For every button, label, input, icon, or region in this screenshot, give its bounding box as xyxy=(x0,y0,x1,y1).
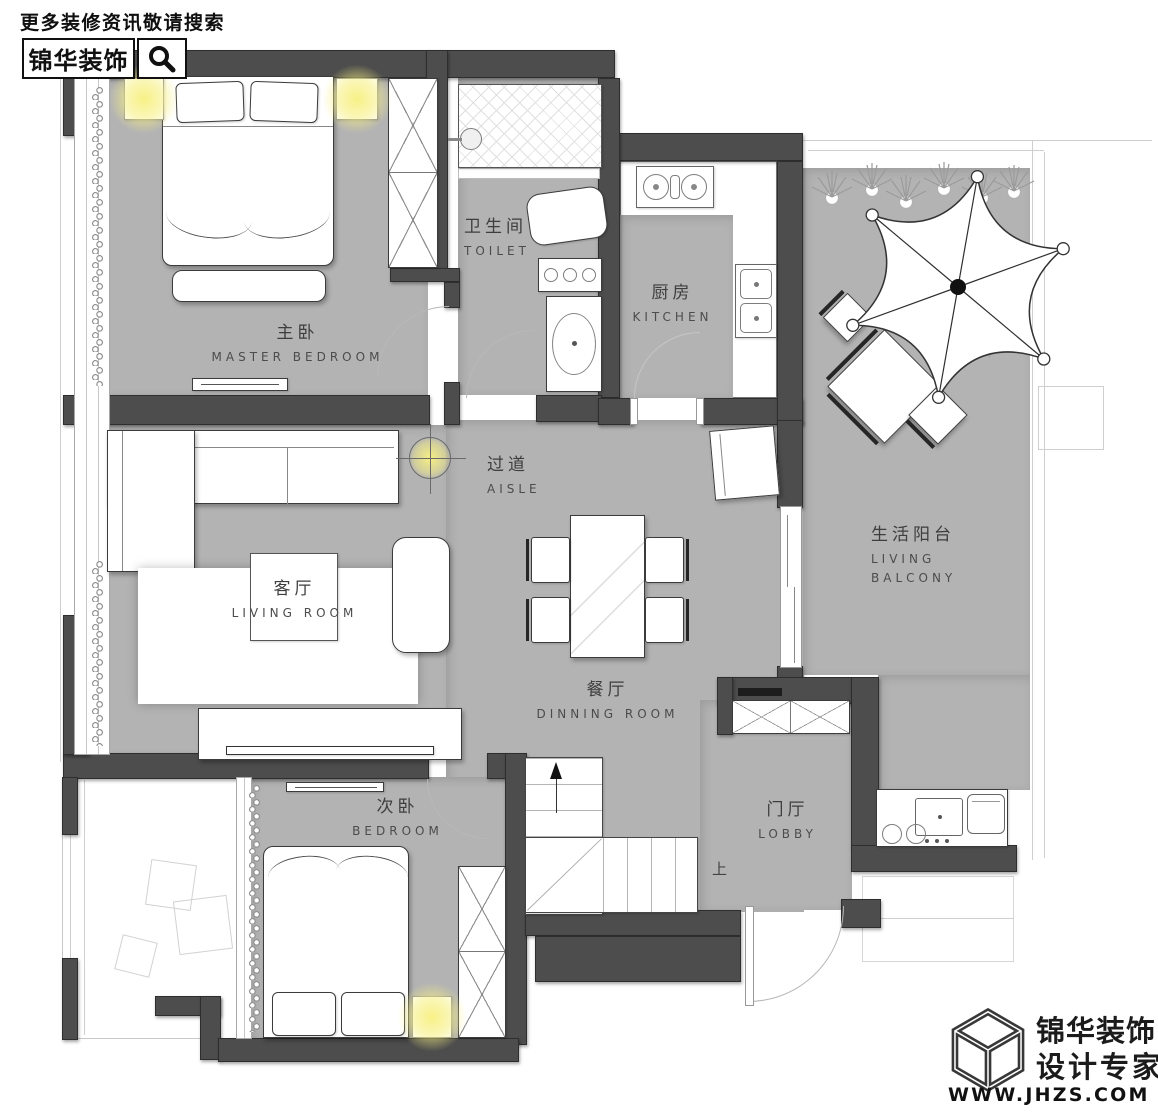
wall-segment xyxy=(612,133,803,161)
exterior-line xyxy=(808,150,1044,151)
utility-counter xyxy=(876,789,1008,847)
hob-circle xyxy=(906,824,926,844)
room-label-cn: 卫生间 xyxy=(464,212,530,237)
curtain xyxy=(92,86,103,386)
room-label-en: AISLE xyxy=(487,482,541,496)
nightstand xyxy=(336,78,378,120)
room-label-living-room: 客厅 LIVING ROOM xyxy=(192,574,397,620)
wardrobe-cell xyxy=(389,173,437,267)
stairs-arrow-tail xyxy=(556,779,557,813)
room-label-en: LOBBY xyxy=(705,827,870,841)
room-label-master-bedroom: 主卧 MASTER BEDROOM xyxy=(190,318,405,364)
exterior-line xyxy=(60,50,61,762)
basin xyxy=(740,303,772,333)
wall-segment xyxy=(487,753,507,779)
wardrobe xyxy=(458,866,506,1038)
tv-shelf xyxy=(286,782,384,792)
pillow xyxy=(175,81,244,123)
vanity-sink xyxy=(546,296,602,392)
stove-panel xyxy=(670,175,680,199)
room-label-en: LIVING xyxy=(871,552,956,566)
room-label-kitchen: 厨房 KITCHEN xyxy=(610,278,735,324)
shoe-cabinet xyxy=(732,700,850,734)
nightstand xyxy=(124,78,164,120)
door-arc-entry xyxy=(748,906,844,1002)
balcony-floor-lower xyxy=(878,675,1030,790)
faucet xyxy=(572,341,577,346)
door-post xyxy=(696,398,704,425)
kitchen-sink xyxy=(735,264,777,338)
side-table xyxy=(392,537,450,653)
wall-segment xyxy=(62,958,78,1040)
wall-segment xyxy=(717,677,733,735)
stairs-up-label: 上 xyxy=(712,858,727,879)
wall-segment xyxy=(63,395,430,425)
wall-segment xyxy=(62,777,78,835)
bed-sheet-line xyxy=(163,126,333,127)
room-label-dining-room: 餐厅 DINNING ROOM xyxy=(505,675,710,721)
entry-bench xyxy=(738,688,782,696)
shower-arm xyxy=(448,138,462,141)
curtain xyxy=(92,560,103,746)
room-label-en: MASTER BEDROOM xyxy=(190,350,405,364)
hob-circle xyxy=(882,824,902,844)
nightstand xyxy=(412,996,452,1038)
stairs-arrow-icon xyxy=(550,762,562,779)
room-label-en: BALCONY xyxy=(871,571,956,585)
pillow xyxy=(272,992,336,1036)
room-label-cn: 客厅 xyxy=(192,574,397,599)
stove xyxy=(636,166,714,208)
wardrobe-cell xyxy=(459,867,505,952)
lamp-cross xyxy=(430,424,431,494)
room-label-en: BEDROOM xyxy=(295,824,500,838)
header-brand-label: 锦华装饰 xyxy=(29,41,129,76)
plant-sketch xyxy=(173,895,233,955)
room-label-en: TOILET xyxy=(464,244,530,258)
room-label-cn: 餐厅 xyxy=(505,675,710,700)
curtain xyxy=(249,784,260,1032)
search-button xyxy=(137,38,187,79)
wall-segment xyxy=(218,1038,519,1062)
dining-chair xyxy=(531,597,570,643)
faucet xyxy=(935,839,939,843)
pillow xyxy=(249,81,318,123)
stairs-lower-flight xyxy=(603,838,697,912)
toilet-fixture xyxy=(525,185,609,247)
room-label-cn: 生活阳台 xyxy=(871,520,956,545)
wall-segment xyxy=(851,845,1017,872)
tv xyxy=(226,746,434,755)
wall-segment xyxy=(598,398,634,425)
dining-chair xyxy=(531,537,570,583)
room-label-en: KITCHEN xyxy=(610,310,735,324)
wash-counter xyxy=(538,258,602,292)
exterior-frame xyxy=(1038,386,1104,450)
shower-head xyxy=(460,128,482,150)
sofa-chaise xyxy=(107,430,195,572)
room-label-en: LIVING ROOM xyxy=(192,606,397,620)
wardrobe xyxy=(388,78,438,268)
wall-segment xyxy=(444,282,460,308)
room-label-cn: 厨房 xyxy=(610,278,735,303)
wardrobe-cell xyxy=(459,952,505,1037)
header-brand-box: 锦华装饰 xyxy=(22,38,135,79)
room-label-living-balcony: 生活阳台 LIVING BALCONY xyxy=(871,520,956,585)
burner xyxy=(681,174,707,200)
wall-segment xyxy=(777,161,803,423)
door-post xyxy=(630,398,638,425)
glass-screen xyxy=(458,168,600,179)
floor-plan-page: 上 xyxy=(0,0,1158,1115)
wall-segment xyxy=(535,936,741,982)
room-label-lobby: 门厅 LOBBY xyxy=(705,795,870,841)
balcony-window-line xyxy=(84,780,85,1035)
exterior-line xyxy=(800,140,1152,141)
pillow xyxy=(341,992,405,1036)
burner xyxy=(643,174,669,200)
wall-segment xyxy=(444,382,460,425)
wall-segment xyxy=(536,395,602,422)
search-icon xyxy=(147,44,177,74)
washing-machine xyxy=(967,794,1005,834)
basin xyxy=(740,269,772,299)
room-label-cn: 过道 xyxy=(487,450,541,475)
room-label-en: DINNING ROOM xyxy=(505,707,710,721)
exterior-line xyxy=(1032,140,1033,860)
wall-segment xyxy=(777,420,803,508)
room-label-cn: 门厅 xyxy=(705,795,870,820)
room-label-cn: 主卧 xyxy=(190,318,405,343)
exterior-line xyxy=(1044,152,1045,858)
dining-chair xyxy=(645,537,684,583)
fridge xyxy=(709,425,780,500)
wall-segment xyxy=(841,899,881,928)
sliding-door xyxy=(780,506,802,668)
exterior-frame xyxy=(862,876,1014,962)
tv-shelf xyxy=(192,378,288,391)
lamp-cross xyxy=(396,458,466,459)
exterior-line xyxy=(862,918,1014,919)
shower-tray xyxy=(458,84,602,168)
bed-bench xyxy=(172,270,326,302)
footer-logo-block: 锦华装饰 设计专家 WWW.JHZS.COM xyxy=(946,1006,1156,1110)
wardrobe-cell xyxy=(389,79,437,173)
faucet xyxy=(945,839,949,843)
wall-segment xyxy=(390,268,460,282)
room-label-cn: 次卧 xyxy=(295,792,500,817)
entry-door-leaf xyxy=(745,906,754,1006)
faucet xyxy=(925,839,929,843)
room-label-toilet: 卫生间 TOILET xyxy=(464,212,530,258)
cube-logo-icon xyxy=(946,1008,1030,1092)
dining-table xyxy=(570,515,645,658)
footer-tagline: 设计专家 xyxy=(1036,1044,1158,1086)
room-label-aisle: 过道 AISLE xyxy=(487,450,541,496)
footer-website: WWW.JHZS.COM xyxy=(948,1084,1150,1106)
room-label-bedroom: 次卧 BEDROOM xyxy=(295,792,500,838)
header-tagline: 更多装修资讯敬请搜索 xyxy=(20,8,225,35)
wall-segment xyxy=(505,753,527,1045)
dining-chair xyxy=(645,597,684,643)
